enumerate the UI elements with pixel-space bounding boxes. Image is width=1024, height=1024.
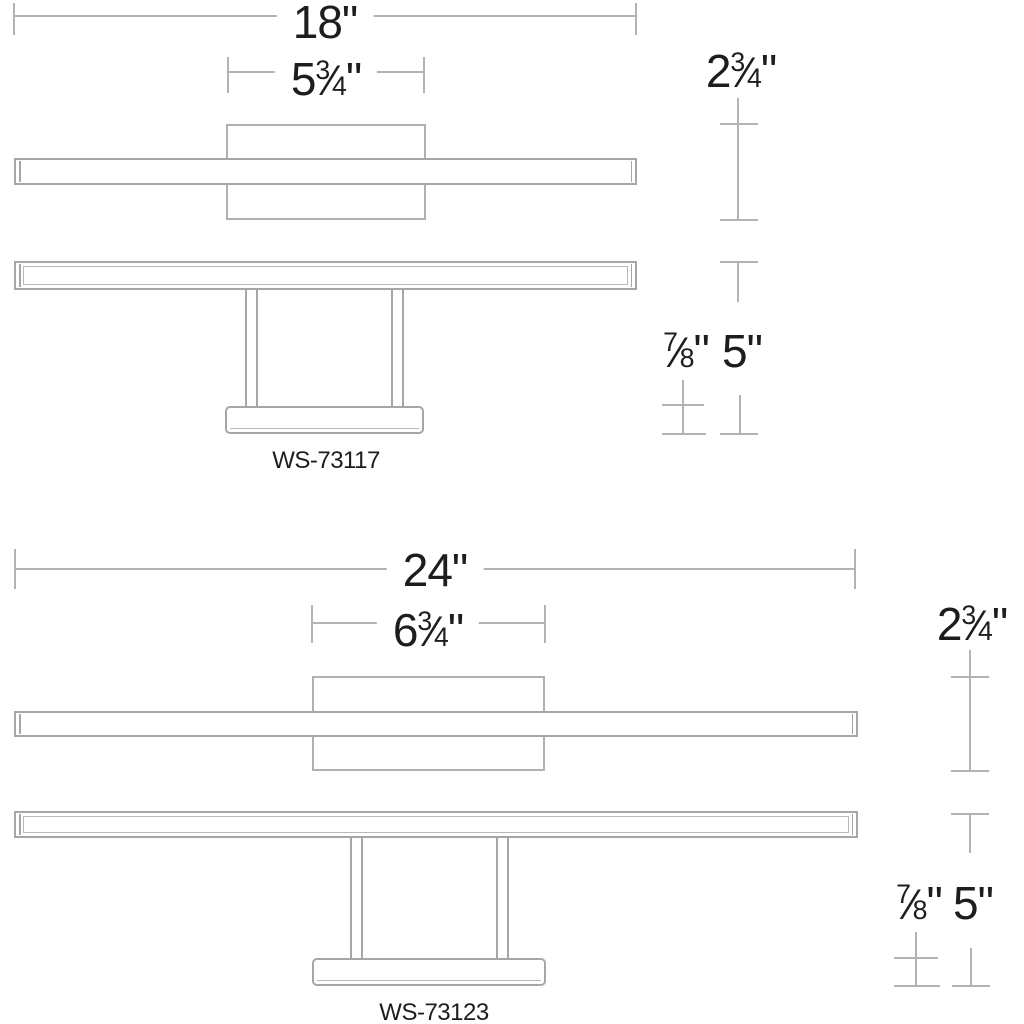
bar-end-cap-left <box>19 814 21 835</box>
backplate-width-label: 63⁄4" <box>377 606 479 654</box>
extension-bottom-tick <box>720 433 758 435</box>
overall-width-label: 24" <box>387 546 484 594</box>
overall-width-tick-left <box>13 3 15 35</box>
base-depth-cross-tick <box>894 957 938 959</box>
model-number-label: WS-73117 <box>272 448 380 474</box>
height-end-tick <box>720 219 758 221</box>
overall-width-label: 18" <box>277 0 374 46</box>
bar-end-cap-left <box>19 264 21 287</box>
bar-end-cap-left <box>19 714 21 734</box>
light-bar-front-view <box>14 711 858 737</box>
base-depth-bottom-tick <box>894 985 940 987</box>
height-label: 23⁄4" <box>931 600 1013 648</box>
extension-dim-line-lower <box>739 395 741 435</box>
mounting-base <box>312 958 546 986</box>
extension-dim-line-upper <box>737 262 739 302</box>
light-bar-front-view <box>14 158 637 185</box>
height-cross-tick <box>951 676 989 678</box>
base-depth-dim-line <box>682 380 684 435</box>
extension-bottom-tick <box>952 985 990 987</box>
height-dim-line <box>969 650 971 772</box>
backplate-width-label: 53⁄4" <box>275 55 377 103</box>
height-end-tick <box>951 770 989 772</box>
height-cross-tick <box>720 123 758 125</box>
backplate-width-tick-left <box>227 57 229 93</box>
extension-label: 5" <box>947 879 999 927</box>
vanity-light-dimension-drawing: 18" 53⁄4" 23⁄4" 7⁄8" <box>0 0 1024 1024</box>
support-post-right <box>391 290 404 406</box>
base-inner-line <box>230 428 419 430</box>
base-inner-line <box>317 980 541 982</box>
support-post-left <box>350 838 363 958</box>
light-bar-side-view <box>14 261 637 290</box>
height-dim-line <box>737 98 739 220</box>
base-depth-label: 7⁄8" <box>890 879 948 927</box>
bar-inner-profile <box>23 816 849 833</box>
extension-dim-line-upper <box>969 814 971 853</box>
extension-dim-line-lower <box>970 948 972 987</box>
support-post-right <box>496 838 509 958</box>
backplate-width-tick-right <box>423 57 425 93</box>
bar-end-cap-left <box>19 161 21 182</box>
overall-width-tick-left <box>14 549 16 589</box>
bar-end-cap-right <box>852 714 854 734</box>
mounting-base <box>225 406 424 434</box>
extension-label: 5" <box>716 327 768 375</box>
base-depth-cross-tick <box>662 404 704 406</box>
bar-end-cap-right <box>631 264 633 287</box>
overall-width-tick-right <box>635 3 637 35</box>
extension-top-tick <box>720 261 758 263</box>
overall-width-tick-right <box>854 549 856 589</box>
bar-end-cap-right <box>631 161 633 182</box>
light-bar-side-view <box>14 811 858 838</box>
bar-end-cap-right <box>852 814 854 835</box>
model-number-label: WS-73123 <box>379 1000 488 1024</box>
bar-inner-profile <box>23 266 628 285</box>
backplate-width-tick-left <box>311 605 313 643</box>
support-post-left <box>245 290 258 406</box>
backplate-width-tick-right <box>544 605 546 643</box>
base-depth-dim-line <box>915 932 917 987</box>
base-depth-bottom-tick <box>662 433 706 435</box>
height-label: 23⁄4" <box>700 47 782 95</box>
base-depth-label: 7⁄8" <box>657 327 715 375</box>
